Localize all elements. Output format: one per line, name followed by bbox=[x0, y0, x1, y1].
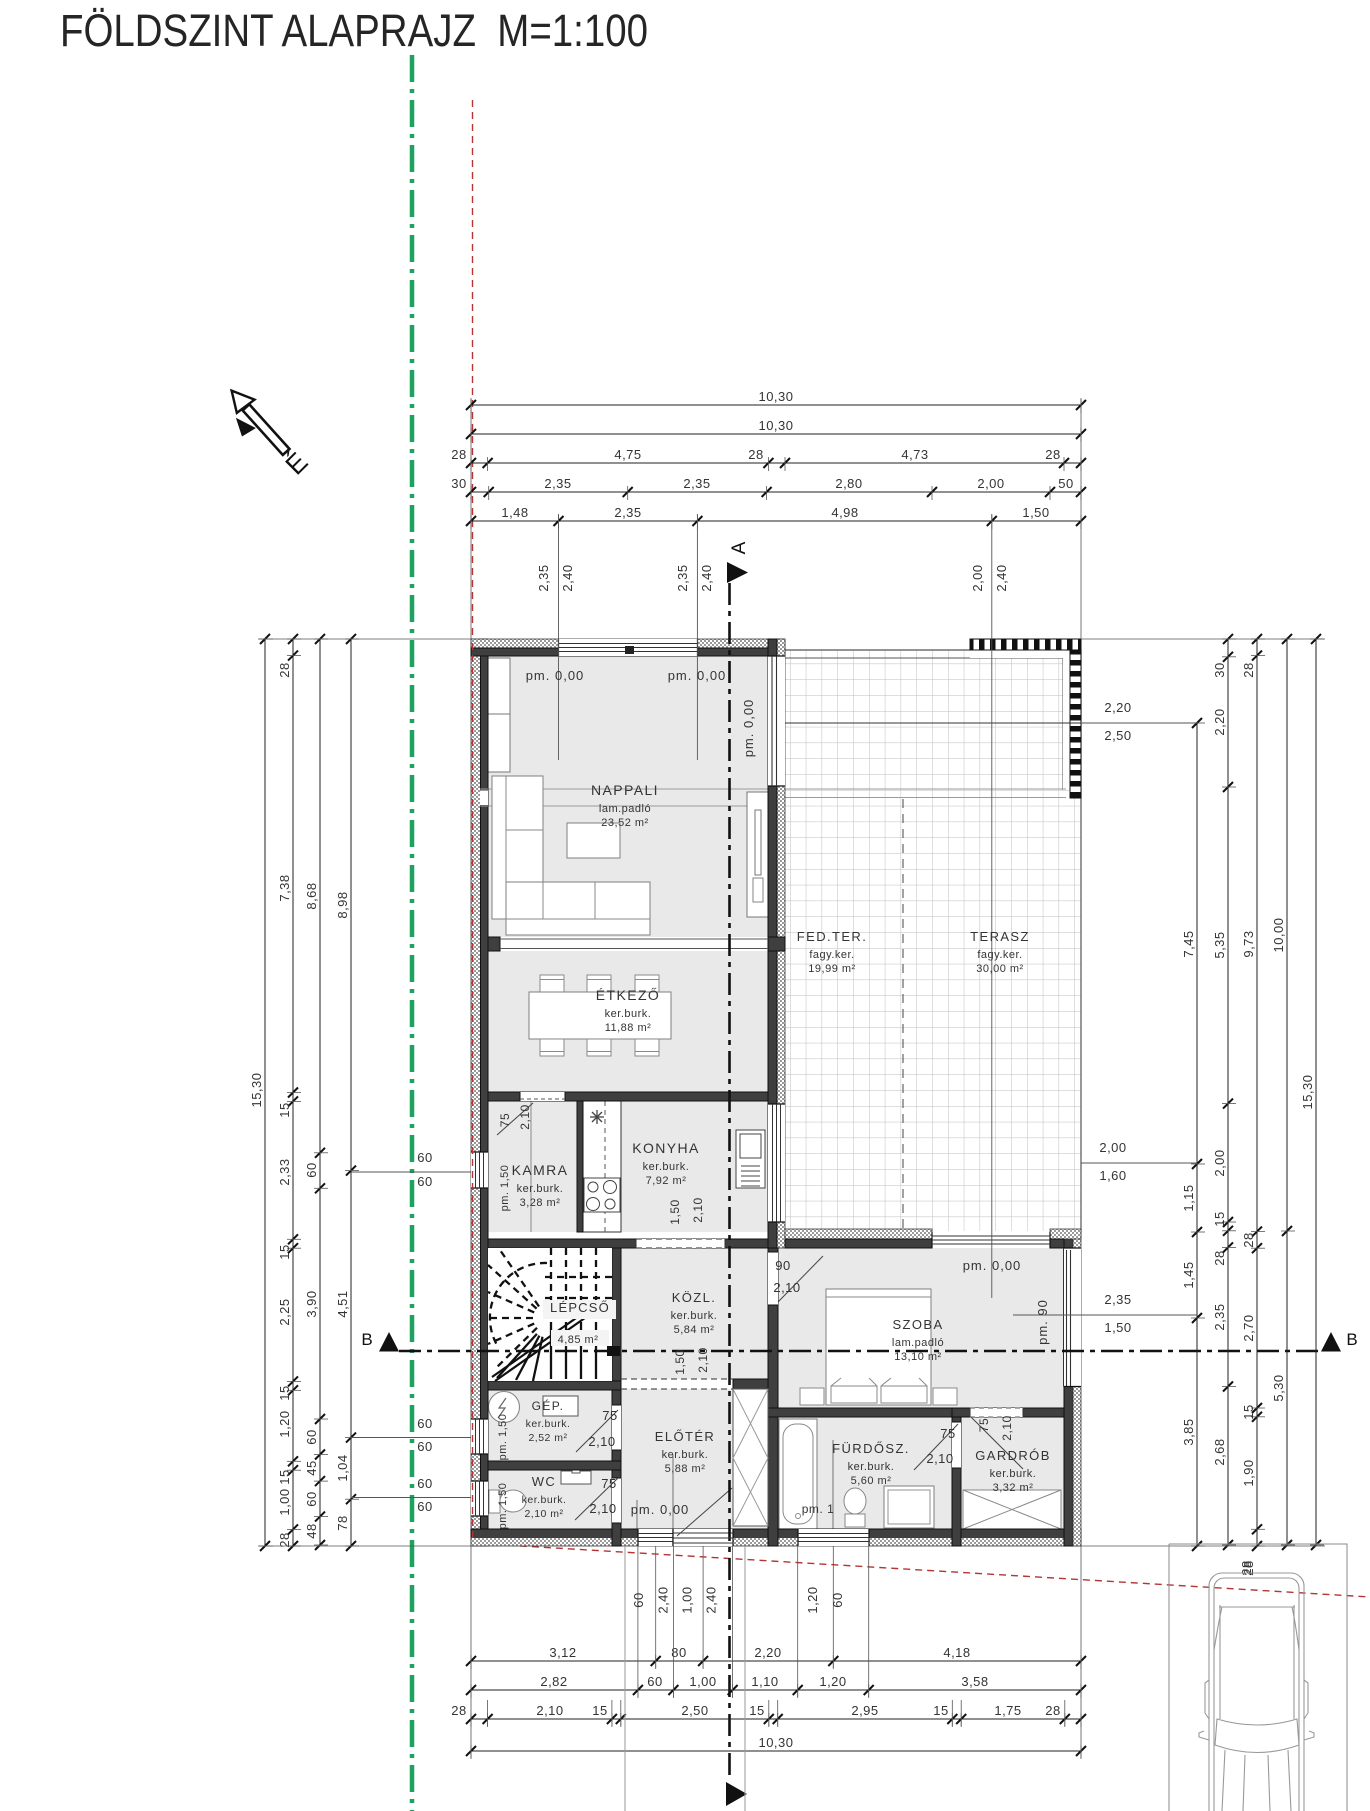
svg-text:SZOBA: SZOBA bbox=[892, 1317, 943, 1332]
svg-text:TERASZ: TERASZ bbox=[970, 929, 1030, 944]
svg-text:28: 28 bbox=[277, 1532, 292, 1547]
svg-text:ker.burk.: ker.burk. bbox=[662, 1449, 709, 1461]
svg-text:fagy.ker.: fagy.ker. bbox=[809, 949, 854, 961]
svg-text:75: 75 bbox=[940, 1426, 955, 1441]
svg-text:28: 28 bbox=[277, 662, 292, 677]
svg-text:2,00: 2,00 bbox=[1212, 1149, 1227, 1176]
svg-text:ker.burk.: ker.burk. bbox=[526, 1418, 571, 1430]
svg-text:48: 48 bbox=[304, 1523, 319, 1538]
svg-text:28: 28 bbox=[451, 1703, 466, 1718]
svg-text:28: 28 bbox=[1241, 662, 1256, 677]
svg-text:2,40: 2,40 bbox=[699, 564, 714, 591]
svg-text:28: 28 bbox=[1045, 1703, 1060, 1718]
svg-text:75: 75 bbox=[601, 1476, 616, 1491]
svg-text:8,98: 8,98 bbox=[335, 891, 350, 918]
svg-text:2,35: 2,35 bbox=[1104, 1292, 1131, 1307]
svg-text:2,10: 2,10 bbox=[1000, 1415, 1014, 1440]
svg-text:1,15: 1,15 bbox=[1181, 1184, 1196, 1211]
svg-text:FÜRDŐSZ.: FÜRDŐSZ. bbox=[832, 1441, 910, 1456]
svg-text:28: 28 bbox=[748, 447, 763, 462]
svg-text:2,35: 2,35 bbox=[1212, 1303, 1227, 1330]
svg-text:60: 60 bbox=[417, 1416, 432, 1431]
svg-text:15,30: 15,30 bbox=[1300, 1074, 1315, 1109]
svg-text:4,51: 4,51 bbox=[335, 1290, 350, 1317]
svg-text:60: 60 bbox=[417, 1439, 432, 1454]
svg-text:28: 28 bbox=[1045, 447, 1060, 462]
svg-text:11,88 m²: 11,88 m² bbox=[605, 1022, 652, 1034]
svg-text:fagy.ker.: fagy.ker. bbox=[977, 949, 1022, 961]
svg-text:1,00: 1,00 bbox=[680, 1586, 695, 1613]
svg-text:2,82: 2,82 bbox=[540, 1674, 567, 1689]
svg-text:FÖLDSZINT ALAPRAJZ M=1:100: FÖLDSZINT ALAPRAJZ M=1:100 bbox=[60, 5, 648, 56]
svg-text:60: 60 bbox=[417, 1174, 432, 1189]
svg-text:NAPPALI: NAPPALI bbox=[591, 782, 659, 798]
svg-text:8,68: 8,68 bbox=[304, 882, 319, 909]
svg-text:15: 15 bbox=[277, 1102, 292, 1117]
svg-text:15: 15 bbox=[277, 1244, 292, 1259]
svg-text:15: 15 bbox=[277, 1385, 292, 1400]
svg-text:2,20: 2,20 bbox=[1104, 700, 1131, 715]
svg-text:2,68: 2,68 bbox=[1212, 1438, 1227, 1465]
svg-text:90: 90 bbox=[775, 1258, 790, 1273]
svg-text:1,75: 1,75 bbox=[994, 1703, 1021, 1718]
svg-text:4,85 m²: 4,85 m² bbox=[558, 1334, 599, 1346]
svg-text:10,00: 10,00 bbox=[1271, 917, 1286, 952]
svg-text:B: B bbox=[1346, 1330, 1357, 1349]
svg-text:ELŐTÉR: ELŐTÉR bbox=[655, 1429, 715, 1444]
svg-text:60: 60 bbox=[647, 1674, 662, 1689]
svg-text:30: 30 bbox=[451, 476, 466, 491]
svg-text:pm. 0,00: pm. 0,00 bbox=[963, 1258, 1022, 1273]
svg-text:10,30: 10,30 bbox=[758, 1735, 793, 1750]
svg-text:3,85: 3,85 bbox=[1181, 1418, 1196, 1445]
svg-text:2,50: 2,50 bbox=[1104, 728, 1131, 743]
svg-text:lam.padló: lam.padló bbox=[892, 1337, 944, 1349]
svg-text:15: 15 bbox=[933, 1703, 948, 1718]
svg-text:30,00 m²: 30,00 m² bbox=[976, 963, 1023, 975]
svg-text:10,30: 10,30 bbox=[758, 389, 793, 404]
svg-text:4,73: 4,73 bbox=[901, 447, 928, 462]
svg-text:2,40: 2,40 bbox=[704, 1586, 719, 1613]
svg-text:ker.burk.: ker.burk. bbox=[990, 1468, 1037, 1480]
svg-text:2,35: 2,35 bbox=[675, 564, 690, 591]
svg-text:15: 15 bbox=[592, 1703, 607, 1718]
svg-text:2,50: 2,50 bbox=[681, 1703, 708, 1718]
svg-text:KAMRA: KAMRA bbox=[512, 1162, 569, 1178]
svg-text:1,10: 1,10 bbox=[751, 1674, 778, 1689]
svg-text:15,30: 15,30 bbox=[249, 1072, 264, 1107]
svg-text:15: 15 bbox=[1212, 1211, 1227, 1226]
svg-text:ker.burk.: ker.burk. bbox=[643, 1161, 690, 1173]
svg-text:2,20: 2,20 bbox=[1212, 708, 1227, 735]
svg-text:78: 78 bbox=[335, 1515, 350, 1530]
svg-text:pm. 1: pm. 1 bbox=[802, 1502, 835, 1516]
svg-text:ker.burk.: ker.burk. bbox=[517, 1183, 564, 1195]
svg-text:FED.TER.: FED.TER. bbox=[797, 929, 867, 944]
svg-text:2,10: 2,10 bbox=[518, 1104, 532, 1129]
svg-text:2,00: 2,00 bbox=[1099, 1140, 1126, 1155]
svg-text:60: 60 bbox=[304, 1429, 319, 1444]
svg-text:1,45: 1,45 bbox=[1181, 1261, 1196, 1288]
svg-text:2,10: 2,10 bbox=[696, 1347, 710, 1372]
svg-text:LÉPCSŐ: LÉPCSŐ bbox=[550, 1300, 610, 1315]
svg-text:5,30: 5,30 bbox=[1271, 1374, 1286, 1401]
svg-text:1,00: 1,00 bbox=[689, 1674, 716, 1689]
svg-text:pm. 1,50: pm. 1,50 bbox=[497, 1483, 509, 1530]
svg-text:3,58: 3,58 bbox=[961, 1674, 988, 1689]
svg-text:GÉP.: GÉP. bbox=[532, 1398, 565, 1413]
svg-text:ker.burk.: ker.burk. bbox=[848, 1461, 895, 1473]
svg-text:2,70: 2,70 bbox=[1241, 1314, 1256, 1341]
svg-text:19,99 m²: 19,99 m² bbox=[808, 963, 855, 975]
svg-text:75: 75 bbox=[498, 1113, 512, 1127]
svg-text:15: 15 bbox=[277, 1469, 292, 1484]
svg-text:2,35: 2,35 bbox=[536, 564, 551, 591]
svg-text:2,20: 2,20 bbox=[754, 1645, 781, 1660]
svg-text:60: 60 bbox=[830, 1592, 845, 1607]
svg-text:2,35: 2,35 bbox=[683, 476, 710, 491]
svg-text:KONYHA: KONYHA bbox=[632, 1140, 700, 1156]
svg-text:60: 60 bbox=[631, 1592, 646, 1607]
svg-text:GARDRÓB: GARDRÓB bbox=[975, 1448, 1051, 1463]
svg-text:5,60 m²: 5,60 m² bbox=[851, 1475, 892, 1487]
svg-text:ker.burk.: ker.burk. bbox=[522, 1494, 567, 1506]
svg-text:10,30: 10,30 bbox=[758, 418, 793, 433]
svg-text:2,80: 2,80 bbox=[835, 476, 862, 491]
svg-text:15: 15 bbox=[1241, 1404, 1256, 1419]
svg-text:2,40: 2,40 bbox=[560, 564, 575, 591]
svg-text:A: A bbox=[729, 541, 750, 554]
svg-text:2,95: 2,95 bbox=[851, 1703, 878, 1718]
svg-text:pm. 0,00: pm. 0,00 bbox=[668, 668, 727, 683]
svg-text:5,35: 5,35 bbox=[1212, 931, 1227, 958]
svg-text:B: B bbox=[361, 1330, 372, 1349]
svg-text:1,20: 1,20 bbox=[805, 1586, 820, 1613]
svg-text:pm. 0,00: pm. 0,00 bbox=[526, 668, 585, 683]
svg-text:1,20: 1,20 bbox=[819, 1674, 846, 1689]
svg-text:ker.burk.: ker.burk. bbox=[671, 1310, 718, 1322]
svg-text:75: 75 bbox=[977, 1418, 991, 1432]
svg-text:2,10 m²: 2,10 m² bbox=[524, 1508, 563, 1520]
svg-text:2,10: 2,10 bbox=[773, 1280, 800, 1295]
svg-text:1,50: 1,50 bbox=[1104, 1320, 1131, 1335]
svg-text:75: 75 bbox=[602, 1408, 617, 1423]
svg-text:28: 28 bbox=[1212, 1250, 1227, 1265]
svg-text:45: 45 bbox=[304, 1460, 319, 1475]
svg-text:1,50: 1,50 bbox=[673, 1349, 687, 1374]
svg-text:2,52 m²: 2,52 m² bbox=[528, 1432, 567, 1444]
svg-text:1,50: 1,50 bbox=[1022, 505, 1049, 520]
svg-text:60: 60 bbox=[417, 1476, 432, 1491]
svg-text:pm. 0,00: pm. 0,00 bbox=[741, 699, 756, 758]
svg-text:9,73: 9,73 bbox=[1241, 930, 1256, 957]
svg-text:7,92 m²: 7,92 m² bbox=[646, 1175, 687, 1187]
svg-text:7,38: 7,38 bbox=[277, 874, 292, 901]
svg-text:23,52 m²: 23,52 m² bbox=[601, 817, 648, 829]
svg-text:3,12: 3,12 bbox=[549, 1645, 576, 1660]
svg-text:3,28 m²: 3,28 m² bbox=[520, 1197, 561, 1209]
svg-text:2,00: 2,00 bbox=[977, 476, 1004, 491]
svg-text:pm. 90: pm. 90 bbox=[1035, 1299, 1050, 1345]
svg-text:30: 30 bbox=[1212, 662, 1227, 677]
svg-text:60: 60 bbox=[304, 1162, 319, 1177]
svg-text:2,10: 2,10 bbox=[926, 1451, 953, 1466]
svg-text:pm. 1,50: pm. 1,50 bbox=[499, 1165, 511, 1212]
svg-text:2,10: 2,10 bbox=[691, 1197, 705, 1222]
svg-text:ÉTKEZŐ: ÉTKEZŐ bbox=[596, 987, 660, 1003]
svg-text:15: 15 bbox=[749, 1703, 764, 1718]
svg-text:KÖZL.: KÖZL. bbox=[672, 1290, 717, 1305]
svg-text:3,90: 3,90 bbox=[304, 1290, 319, 1317]
svg-text:pm. 1,50: pm. 1,50 bbox=[497, 1414, 509, 1461]
svg-text:5,84 m²: 5,84 m² bbox=[674, 1324, 715, 1336]
svg-text:2,25: 2,25 bbox=[277, 1298, 292, 1325]
svg-text:4,18: 4,18 bbox=[943, 1645, 970, 1660]
svg-text:2,00: 2,00 bbox=[970, 564, 985, 591]
svg-text:1,04: 1,04 bbox=[335, 1454, 350, 1481]
svg-text:1,00: 1,00 bbox=[277, 1488, 292, 1515]
svg-text:13,10 m²: 13,10 m² bbox=[894, 1351, 941, 1363]
svg-text:2,40: 2,40 bbox=[656, 1586, 671, 1613]
svg-text:4,75: 4,75 bbox=[614, 447, 641, 462]
svg-text:3,32 m²: 3,32 m² bbox=[993, 1482, 1034, 1494]
svg-text:60: 60 bbox=[417, 1499, 432, 1514]
svg-text:1,48: 1,48 bbox=[501, 505, 528, 520]
svg-text:50: 50 bbox=[1058, 476, 1073, 491]
svg-text:1,60: 1,60 bbox=[1099, 1168, 1126, 1183]
svg-text:lam.padló: lam.padló bbox=[599, 803, 651, 815]
svg-text:7,45: 7,45 bbox=[1181, 930, 1196, 957]
svg-text:pm. 0,00: pm. 0,00 bbox=[631, 1502, 690, 1517]
svg-text:5,88 m²: 5,88 m² bbox=[665, 1463, 706, 1475]
svg-text:28: 28 bbox=[451, 447, 466, 462]
svg-text:2,33: 2,33 bbox=[277, 1158, 292, 1185]
svg-text:60: 60 bbox=[304, 1491, 319, 1506]
svg-text:1,20: 1,20 bbox=[277, 1410, 292, 1437]
svg-text:WC: WC bbox=[532, 1474, 556, 1489]
svg-text:2,35: 2,35 bbox=[544, 476, 571, 491]
svg-text:1,90: 1,90 bbox=[1241, 1459, 1256, 1486]
svg-text:28: 28 bbox=[1241, 1232, 1256, 1247]
svg-text:2,35: 2,35 bbox=[614, 505, 641, 520]
svg-text:2,10: 2,10 bbox=[536, 1703, 563, 1718]
svg-text:4,98: 4,98 bbox=[831, 505, 858, 520]
svg-text:2,40: 2,40 bbox=[994, 564, 1009, 591]
svg-text:1,50: 1,50 bbox=[668, 1199, 682, 1224]
svg-text:ker.burk.: ker.burk. bbox=[605, 1008, 652, 1020]
svg-text:2,10: 2,10 bbox=[588, 1434, 615, 1449]
svg-text:60: 60 bbox=[417, 1150, 432, 1165]
svg-text:2,10: 2,10 bbox=[589, 1501, 616, 1516]
